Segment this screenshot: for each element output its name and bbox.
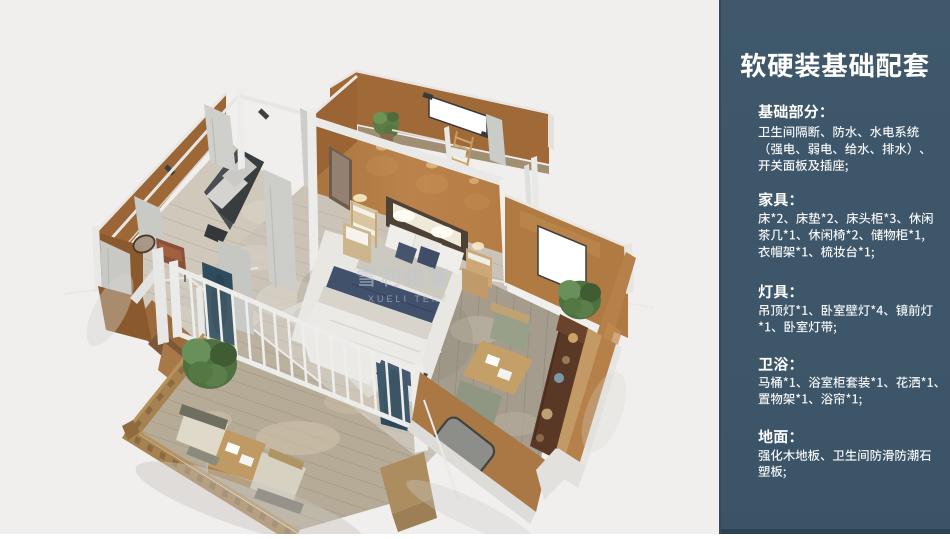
svg-text:XUELI TENT: XUELI TENT	[368, 294, 450, 304]
